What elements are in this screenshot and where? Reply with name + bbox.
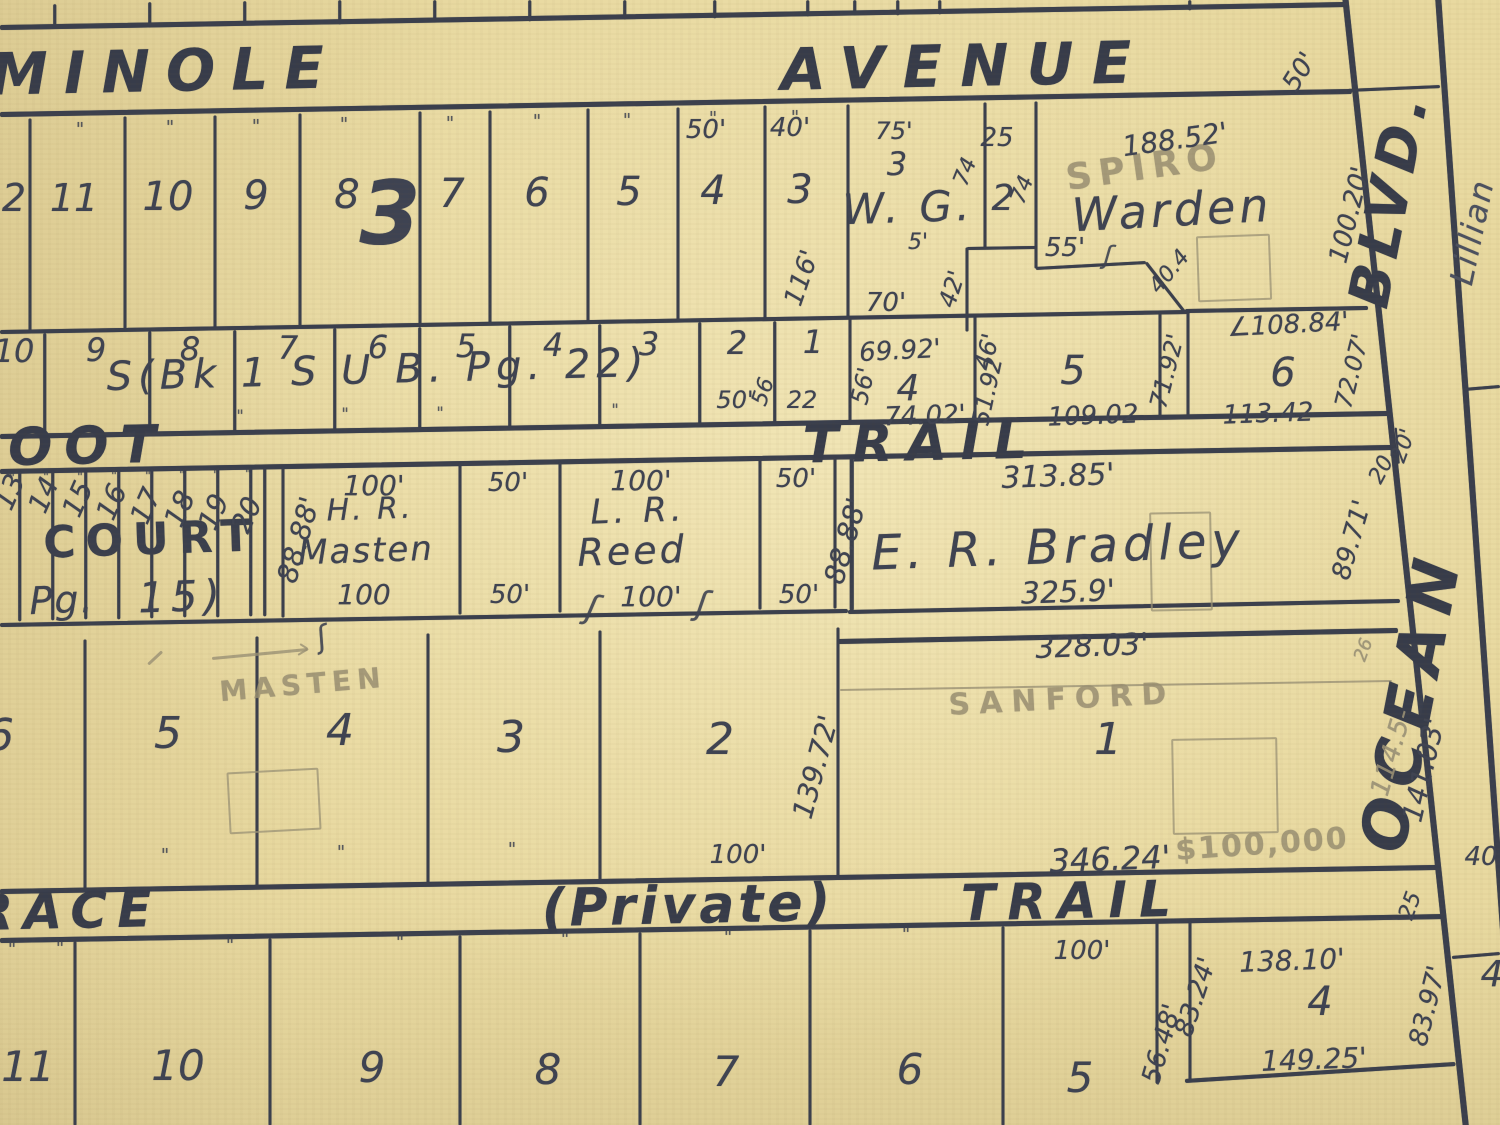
lot-boundary-line (0, 445, 1392, 474)
pencil-stroke (147, 650, 163, 665)
owner-l-r-reed: L. R. (590, 492, 686, 529)
dimension-label: 313.85' (1001, 460, 1115, 494)
lot-number: 3 (887, 148, 907, 180)
ditto-mark: " (166, 119, 174, 137)
ditto-mark: " (709, 110, 717, 128)
ditto-mark: " (8, 941, 16, 959)
lot-boundary-line (809, 929, 812, 1125)
lot-boundary-line (677, 107, 680, 320)
owner-h-r-masten: Masten (298, 532, 435, 571)
lot-boundary-line (967, 246, 1036, 250)
lot-number: 8 (334, 175, 359, 215)
lot-boundary-line (599, 630, 602, 880)
dimension-label: 40.4 (1146, 246, 1194, 298)
ditto-mark: " (623, 112, 631, 130)
ditto-mark: " (76, 121, 84, 139)
ditto-mark: " (213, 470, 219, 483)
pencil-rect-warden (1196, 234, 1272, 303)
lot-boundary-line (759, 458, 762, 609)
pen-squiggle: ʃ (583, 590, 601, 626)
ditto-mark: " (533, 113, 541, 131)
dimension-label: 149.25' (1261, 1044, 1368, 1076)
lot-boundary-line (559, 462, 562, 612)
block-number: 3 (359, 170, 420, 258)
lot-boundary-line (459, 935, 462, 1125)
lot-boundary-line (0, 310, 1190, 334)
dimension-label: 5' (908, 232, 928, 254)
dimension-label: 50' (776, 466, 816, 492)
dimension-label: 56' (847, 365, 879, 407)
ditto-mark: " (724, 929, 732, 947)
lot-boundary-line (0, 2, 1348, 30)
street-race-trail: RACE (0, 884, 162, 938)
dimension-label: 72.07' (1331, 332, 1373, 411)
ditto-mark: " (77, 472, 83, 485)
pencil-masten: MASTEN (218, 664, 387, 706)
dimension-label: 70' (866, 290, 906, 316)
dimension-label: 83.97' (1406, 963, 1451, 1048)
pen-squiggle: ʃ (313, 622, 330, 654)
lot-boundary-line (269, 938, 272, 1125)
pencil-price: $100,000 (1174, 824, 1349, 866)
lot-number: 5 (456, 330, 476, 362)
ditto-mark: " (161, 847, 169, 865)
owner-e-r-bradley: E. R. Bradley (871, 516, 1246, 577)
dimension-label: 346.24' (1049, 841, 1171, 877)
lot-boundary-line (29, 118, 32, 331)
lot-boundary-line (264, 467, 267, 616)
lot-number: 4 (1481, 957, 1500, 993)
lot-number: 2 (2, 179, 26, 217)
lot-number: 10 (143, 177, 194, 217)
pen-squiggle: ʃ (694, 586, 710, 621)
owner-l-r-reed: Reed (577, 530, 688, 572)
ditto-mark: " (446, 115, 454, 133)
lot-number: 10 (0, 335, 34, 367)
lot-number: 8 (180, 333, 200, 365)
lot-number: 5 (616, 172, 641, 212)
lot-number: 5 (154, 712, 182, 756)
lot-number: 1 (803, 326, 823, 358)
ditto-mark: " (252, 118, 260, 136)
lot-boundary-line (1435, 0, 1500, 1030)
lot-number: 5 (1060, 351, 1085, 391)
ditto-mark: " (611, 402, 618, 418)
lot-number: 6 (368, 331, 388, 363)
dimension-label: 100' (710, 842, 767, 868)
dimension-label: 74.02' (884, 402, 966, 431)
dimension-label: 100' (610, 467, 671, 495)
pencil-rect-masten (226, 768, 321, 835)
plat-map-scan: MINOLEAVENUEROOTTRAILRACE(Private)TRAILO… (0, 0, 1500, 1125)
street-root-trail: ROOT (0, 419, 168, 475)
lot-number: 9 (359, 1047, 386, 1089)
page-note: Pg. (29, 580, 95, 620)
dimension-label: 55' (1045, 235, 1085, 261)
pen-squiggle: ʃ (1103, 243, 1114, 270)
lot-number: 4 (326, 709, 354, 753)
dimension-label: 89.71' (1328, 497, 1375, 583)
lot-number: 9 (243, 176, 268, 216)
lot-boundary-line (699, 322, 702, 425)
lot-boundary-line (1187, 312, 1190, 415)
street-seminole-avenue: MINOLE (0, 38, 340, 103)
dimension-label: 100' (620, 583, 681, 611)
lot-number: 6 (524, 173, 549, 213)
lot-boundary-line (0, 609, 848, 627)
dimension-label: 50' (686, 117, 726, 143)
lot-number: 3 (639, 328, 659, 360)
lot-boundary-line (774, 321, 777, 424)
ditto-mark: " (226, 937, 234, 955)
lot-number: 11 (1, 1046, 54, 1088)
dimension-label: 328.03' (1035, 630, 1149, 664)
dimension-label: 116' (780, 247, 823, 309)
lot-number: 2 (727, 327, 747, 359)
dimension-label: 88.88' (820, 495, 871, 587)
lot-boundary-line (849, 318, 852, 421)
dimension-label: 100' (1054, 938, 1111, 964)
lot-boundary-line (124, 116, 127, 329)
lot-number: 9 (86, 334, 106, 366)
ditto-mark: " (902, 926, 910, 944)
lot-boundary-line (84, 639, 87, 889)
lot-number: 10 (151, 1045, 204, 1087)
dimension-label: 69.92' (859, 336, 942, 366)
ditto-mark: " (791, 109, 799, 127)
pencil-sanford: SANFORD (948, 679, 1176, 721)
page-number: 15) (137, 574, 226, 619)
pencil-dimension: 26 (1352, 636, 1377, 664)
dimension-label: 138.10' (1239, 945, 1346, 977)
ditto-mark: " (396, 934, 404, 952)
lot-boundary-line (837, 627, 840, 878)
dimension-label: 139.72' (789, 712, 843, 821)
ditto-mark: " (340, 116, 348, 134)
lot-number: 6 (0, 714, 14, 758)
dimension-label: 75' (875, 119, 912, 143)
dimension-label: 50' (779, 582, 819, 608)
ditto-mark: " (179, 470, 185, 483)
dimension-label: 109.02 (1047, 401, 1139, 430)
dimension-label: 40 (1464, 844, 1497, 870)
lot-boundary-line (427, 633, 430, 883)
ditto-mark: " (341, 406, 348, 422)
ditto-mark: " (43, 472, 49, 485)
street-private-label: (Private) (541, 877, 835, 935)
lot-number: 3 (497, 716, 525, 760)
dimension-label: 100' (343, 472, 404, 500)
lot-boundary-line (1464, 385, 1500, 391)
dimension-label: 25 (980, 125, 1013, 151)
lot-number: 4 (700, 171, 725, 211)
ditto-mark: " (436, 405, 443, 421)
owner-w-g: W. G. (842, 185, 974, 232)
street-race-trail: TRAIL (961, 874, 1184, 929)
dimension-label: 22 (787, 388, 818, 412)
lot-number: 7 (713, 1051, 740, 1093)
ditto-mark: " (111, 471, 117, 484)
lot-number: 5 (1067, 1057, 1094, 1099)
lot-boundary-line (0, 411, 1389, 439)
lot-number: 7 (278, 332, 298, 364)
ditto-mark: " (145, 471, 151, 484)
lot-boundary-line (848, 599, 1400, 614)
dimension-label: 325.9' (1020, 576, 1115, 609)
ditto-mark: " (245, 469, 251, 482)
lot-boundary-line (214, 115, 217, 328)
lot-number: 7 (439, 174, 464, 214)
dimension-label: 56.48' (1138, 1001, 1185, 1087)
ditto-mark: " (561, 931, 569, 949)
ditto-mark: " (56, 940, 64, 958)
lot-boundary-line (74, 941, 77, 1125)
ditto-mark: " (508, 841, 516, 859)
lot-boundary-line (587, 108, 590, 321)
dimension-label: ∠108.84' (1227, 309, 1350, 341)
lot-boundary-line (764, 105, 767, 318)
lot-number: 8 (535, 1049, 562, 1091)
lot-number: 1 (1094, 718, 1122, 762)
lot-number: 4 (1307, 982, 1332, 1022)
lot-number: 3 (787, 170, 812, 210)
lot-number: 6 (1270, 353, 1295, 393)
lot-boundary-line (639, 932, 642, 1125)
dimension-label: 71.92' (1146, 332, 1188, 411)
dimension-label: 113.42 (1222, 399, 1314, 428)
dimension-label: 50' (490, 582, 530, 608)
lot-boundary-line (1002, 926, 1005, 1125)
ditto-mark: " (9, 473, 15, 486)
lot-boundary-line (299, 113, 302, 326)
street-seminole-avenue: AVENUE (780, 33, 1150, 99)
dimension-label: 42' (935, 268, 969, 311)
pencil-rect-sanford (1171, 737, 1279, 835)
lot-number: 6 (897, 1049, 924, 1091)
dimension-label: 100 (337, 581, 390, 609)
pencil-stroke (212, 648, 308, 659)
lot-number: 4 (543, 329, 563, 361)
ditto-mark: " (236, 408, 243, 424)
lot-boundary-line (459, 463, 462, 614)
lot-number: 2 (706, 718, 734, 762)
ditto-mark: " (337, 844, 345, 862)
dimension-label: 50' (488, 470, 528, 496)
lot-boundary-line (489, 110, 492, 323)
lot-number: 11 (50, 179, 98, 217)
